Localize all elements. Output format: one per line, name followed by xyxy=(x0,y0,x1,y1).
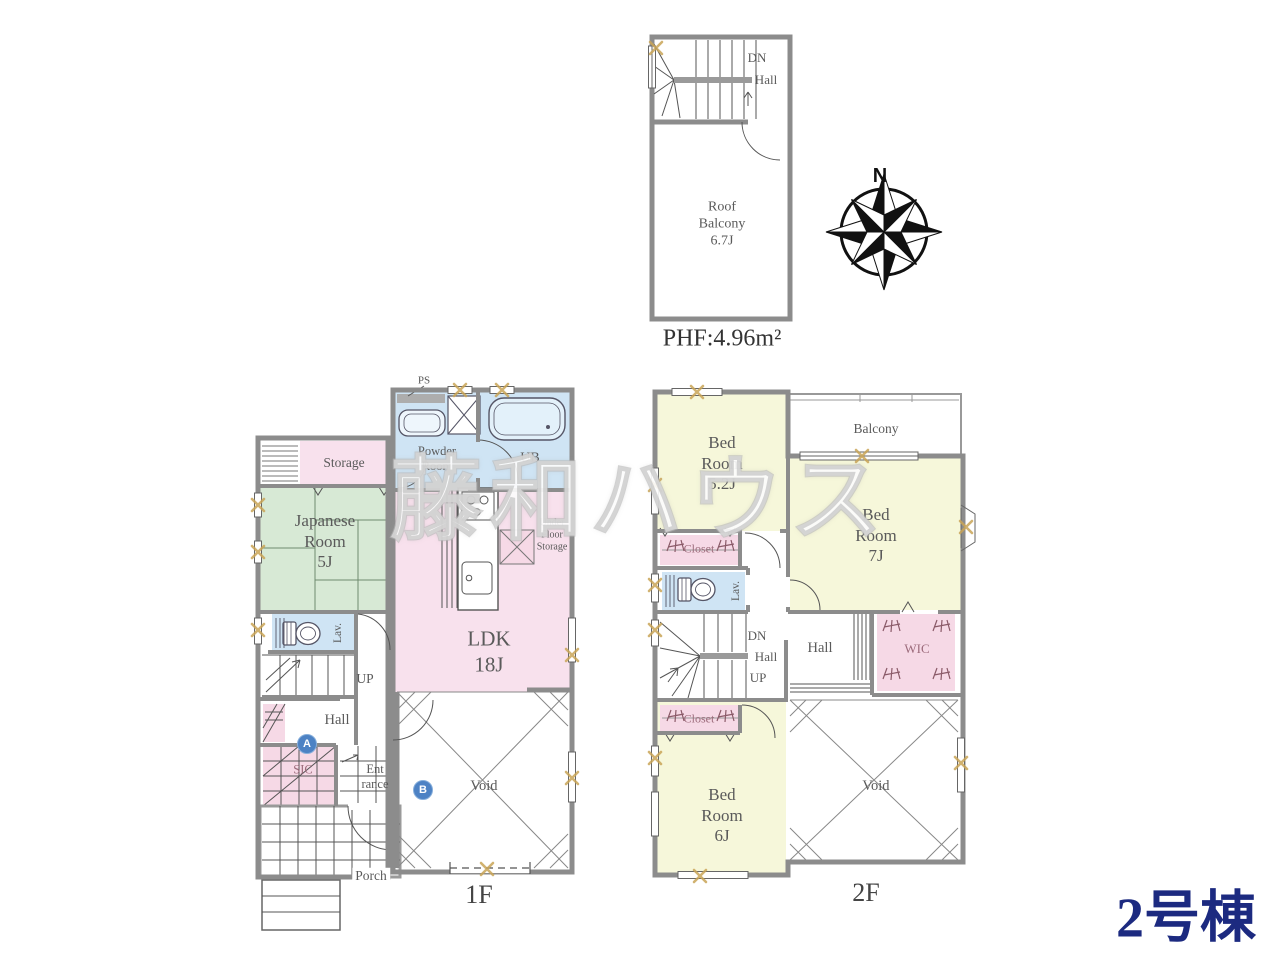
f1-japanese-room-label: Japanese Room 5J xyxy=(295,511,355,573)
f1-ldk-label: LDK 18J xyxy=(467,626,510,677)
compass-north-label: N xyxy=(873,164,887,188)
f2-lav-label: Lav. xyxy=(729,581,743,601)
f1-ps-label: PS xyxy=(418,374,430,387)
f2-bedroom-6-label: Bed Room 6J xyxy=(701,785,743,847)
f1-marker-a: A xyxy=(297,734,317,754)
f2-wic-label: WIC xyxy=(904,641,929,657)
phf-stair-dn-label: DN xyxy=(748,50,767,66)
f1-void-label: Void xyxy=(470,778,497,796)
f1-entrance-label: Ent rance xyxy=(361,762,388,793)
f2-floor-label: 2F xyxy=(852,877,879,909)
compass-rose xyxy=(826,174,942,290)
f1-floor-label: 1F xyxy=(465,879,492,911)
f2-stair-hall-label: Hall xyxy=(755,649,777,665)
f2-stair-dn-label: DN xyxy=(748,628,767,644)
f1-sic-label: SIC xyxy=(293,762,312,777)
f2-hall-label: Hall xyxy=(808,640,833,658)
f2-stair-up-label: UP xyxy=(750,670,767,686)
f1-stairs xyxy=(262,655,356,697)
f1-lav-label: Lav. xyxy=(331,623,345,643)
f1-marker-b: B xyxy=(413,780,433,800)
building-number-badge: 2号棟 xyxy=(1116,873,1256,954)
watermark-text: 藤和ハウス xyxy=(390,426,890,559)
f2-void-label: Void xyxy=(862,778,889,796)
roof-balcony-label: Roof Balcony 6.7J xyxy=(699,198,746,249)
f1-porch-label: Porch xyxy=(352,868,390,884)
floor-plan-page: DN Hall Roof Balcony 6.7J PHF:4.96m² N P… xyxy=(0,0,1280,960)
f1-storage-label: Storage xyxy=(323,455,364,471)
f1-up-label: UP xyxy=(356,671,373,687)
phf-area-label: PHF:4.96m² xyxy=(663,324,782,353)
f1-hall-label: Hall xyxy=(325,712,350,730)
phf-stair-hall-label: Hall xyxy=(755,72,777,88)
f2-closet-lower-label: Closet xyxy=(684,712,715,727)
